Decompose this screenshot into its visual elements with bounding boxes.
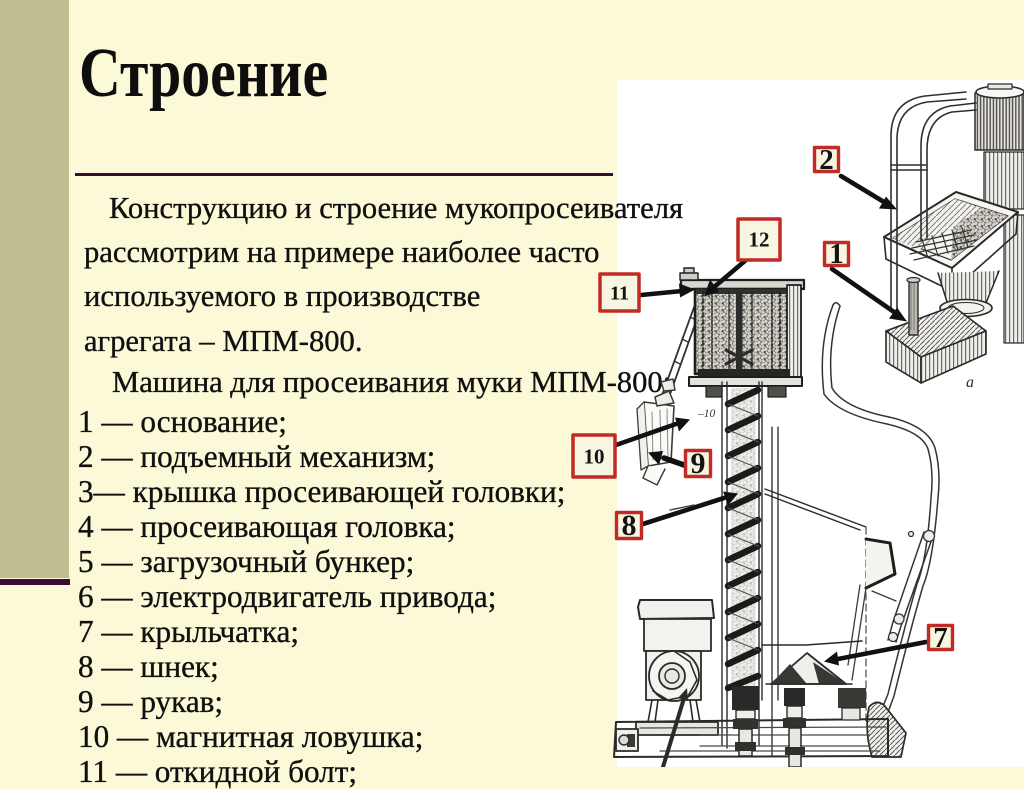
svg-text:1: 1 bbox=[829, 238, 844, 270]
svg-text:8: 8 bbox=[622, 509, 637, 542]
svg-text:11: 11 bbox=[610, 283, 629, 305]
svg-text:12: 12 bbox=[749, 228, 770, 252]
svg-text:–10: –10 bbox=[697, 408, 716, 420]
svg-text:9: 9 bbox=[691, 447, 706, 480]
svg-text:2: 2 bbox=[819, 144, 834, 176]
svg-text:a: a bbox=[966, 374, 974, 391]
svg-text:10: 10 bbox=[584, 445, 605, 469]
svg-text:7: 7 bbox=[933, 622, 948, 654]
